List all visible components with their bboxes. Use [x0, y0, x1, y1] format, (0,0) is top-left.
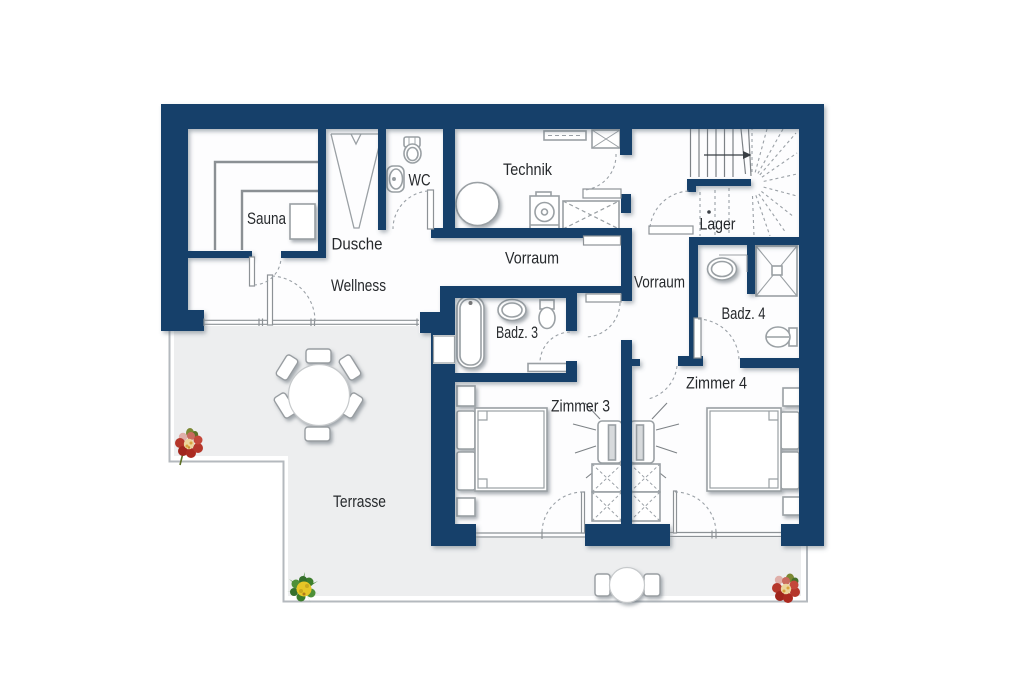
svg-text:Technik: Technik [503, 160, 552, 179]
svg-text:Sauna: Sauna [247, 209, 286, 228]
svg-text:Dusche: Dusche [332, 235, 383, 254]
svg-text:Lager: Lager [700, 215, 736, 234]
svg-text:Vorraum: Vorraum [505, 249, 559, 268]
svg-text:Badz. 3: Badz. 3 [496, 323, 538, 342]
svg-text:Wellness: Wellness [331, 276, 386, 295]
svg-text:Terrasse: Terrasse [333, 492, 386, 511]
svg-text:Zimmer 4: Zimmer 4 [686, 374, 747, 393]
svg-text:Vorraum: Vorraum [634, 273, 685, 292]
svg-text:WC: WC [409, 171, 431, 190]
svg-text:Badz. 4: Badz. 4 [722, 304, 766, 323]
svg-text:Zimmer 3: Zimmer 3 [551, 397, 610, 416]
